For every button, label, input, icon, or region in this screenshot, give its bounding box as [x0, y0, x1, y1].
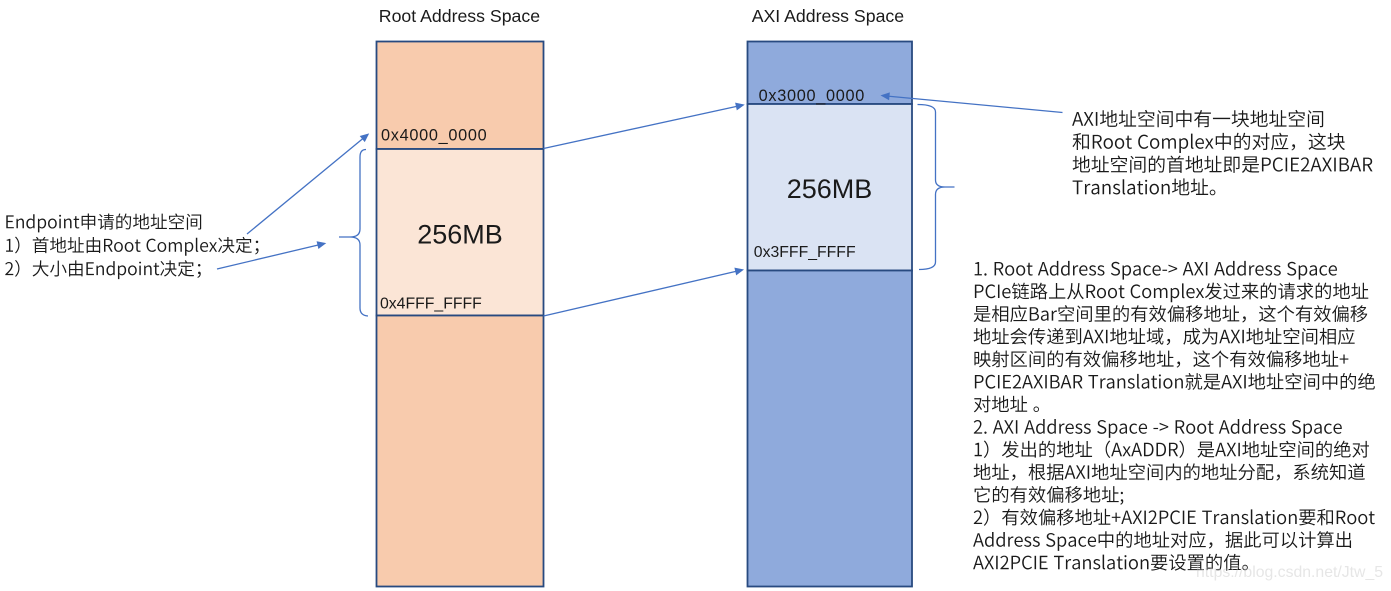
svg-text:0x4FFF_FFFF: 0x4FFF_FFFF: [380, 295, 482, 312]
svg-text:0x3FFF_FFFF: 0x3FFF_FFFF: [754, 244, 856, 261]
svg-text:256MB: 256MB: [417, 220, 503, 250]
svg-text:256MB: 256MB: [787, 174, 873, 204]
svg-text:https://blog.csdn.net/Jtw_5: https://blog.csdn.net/Jtw_5: [1196, 564, 1383, 581]
svg-text:0x3000_0000: 0x3000_0000: [759, 87, 865, 105]
svg-text:0x4000_0000: 0x4000_0000: [381, 127, 487, 145]
svg-text:AXI Address Space: AXI Address Space: [752, 6, 905, 26]
svg-text:Root Address Space: Root Address Space: [379, 6, 540, 26]
